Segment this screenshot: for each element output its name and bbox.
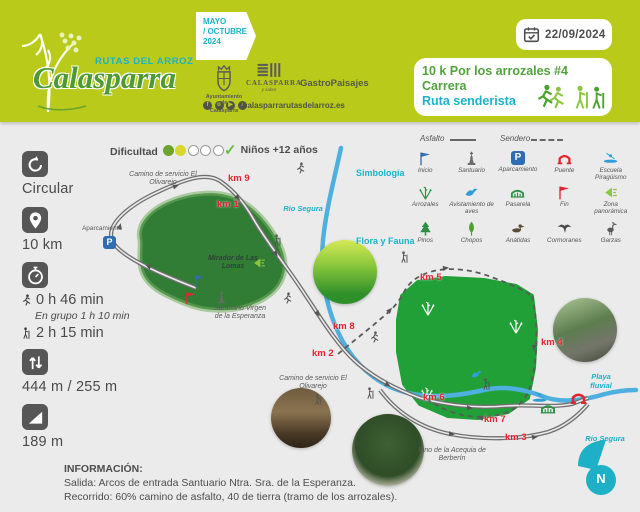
route-type: Circular — [22, 181, 74, 197]
sanctuary-icon — [218, 292, 225, 303]
simbologia-heading: Simbología — [356, 168, 405, 178]
finish-flag-icon — [557, 185, 572, 200]
start-flag-icon — [418, 151, 433, 166]
legend-label: Santuario — [458, 167, 485, 174]
parking-icon: P — [511, 151, 525, 165]
route-poster: RUTAS DEL ARROZ Calasparra MAYO / OCTUBR… — [0, 0, 640, 512]
map-icons-layer — [0, 0, 640, 512]
run-time-row: 0 h 46 min — [20, 292, 104, 308]
panoramic-icon — [603, 185, 618, 200]
difficulty-dot — [213, 145, 224, 156]
km-marker-5: km 5 — [420, 272, 442, 283]
legend-label: Cormoranes — [547, 237, 582, 244]
walk-time-row: 2 h 15 min — [20, 325, 104, 341]
runner-icon — [371, 331, 378, 342]
legend-row-3: Pinos Chopos Anátidas Cormoranes Garzas — [402, 221, 634, 244]
difficulty-dot — [163, 145, 174, 156]
info-recorrido: Recorrido: 60% camino de asfalto, 40 de … — [64, 491, 397, 505]
legend-label: Escuela Piragüismo — [588, 167, 634, 181]
pine-icon — [418, 221, 433, 236]
legend-label: Inicio — [418, 167, 433, 174]
circular-route-icon — [26, 155, 45, 174]
runner-icon — [20, 294, 33, 307]
north-arrow-icon — [578, 440, 616, 495]
hiker-icon — [402, 251, 407, 262]
legend-label: Pinos — [417, 237, 433, 244]
camino-servicio-label-1: Camino de servicio El Olivarejo — [121, 171, 206, 188]
walkway-icon — [510, 185, 525, 200]
legend-label: Puente — [554, 167, 574, 174]
rio-segura-label-1: Río Segura — [273, 204, 333, 213]
check-icon: ✓ — [224, 141, 237, 159]
mirador-label: Mirador de Las Lomas — [207, 255, 259, 272]
north-letter: N — [589, 471, 613, 486]
legend-row-2: Arrozales Avistamiento de aves Pasarela … — [402, 185, 634, 215]
route-type-iconbox — [22, 151, 48, 177]
birdwatching-icon — [464, 185, 479, 200]
km-marker-4: km 4 — [541, 337, 563, 348]
hiker-icon — [20, 327, 33, 340]
walk-time: 2 h 15 min — [36, 325, 104, 341]
km-marker-9: km 9 — [228, 173, 250, 184]
kayak-school-icon — [533, 392, 547, 402]
info-title: INFORMACIÓN: — [64, 463, 397, 477]
slope-triangle-icon — [26, 408, 45, 427]
elevation-iconbox — [22, 349, 48, 375]
km-marker-8: km 8 — [333, 321, 355, 332]
santuario-label: Santuario Virgen de la Esperanza — [211, 305, 269, 322]
km-marker-6: km 6 — [423, 392, 445, 403]
cormorant-icon — [557, 221, 572, 236]
hiker-icon — [368, 387, 373, 398]
legend-label: Fin — [560, 201, 569, 208]
kids-label: Niños +12 años — [241, 144, 318, 156]
slope-iconbox — [22, 404, 48, 430]
legend-label: Arrozales — [412, 201, 439, 208]
parking-icon: P — [103, 236, 116, 249]
info-block: INFORMACIÓN: Salida: Arcos de entrada Sa… — [64, 463, 397, 505]
hiker-icon — [484, 378, 489, 389]
sanctuary-icon — [464, 151, 479, 166]
birdwatching-icon — [471, 371, 481, 377]
pino-acequia-label: Pino de la Acequia de Berberín — [405, 447, 500, 464]
difficulty-dots — [163, 143, 226, 161]
runner-icon — [284, 292, 291, 303]
hiker-icon — [315, 394, 320, 404]
legend-label: Avistamiento de aves — [448, 201, 494, 215]
duck-icon — [510, 221, 525, 236]
poplar-icon — [464, 221, 479, 236]
legend-label: Chopos — [461, 237, 483, 244]
elevation-gain: 444 m / 255 m — [22, 379, 117, 395]
runner-icon — [297, 162, 304, 173]
heron-icon — [603, 221, 618, 236]
rice-field-icon — [418, 185, 433, 200]
km-marker-2: km 2 — [312, 348, 334, 359]
km-marker-7: km 7 — [484, 414, 506, 425]
km-marker-1: km 1 — [217, 199, 239, 210]
aparcamiento-label: Aparcamiento — [67, 225, 137, 233]
rice-field-icon — [510, 320, 523, 333]
max-slope: 189 m — [22, 434, 63, 450]
difficulty-dot — [175, 145, 186, 156]
bridge-icon — [557, 151, 572, 166]
camino-servicio-label-2: Camino de servicio El Olivarejo — [273, 375, 353, 392]
up-down-arrows-icon — [26, 353, 45, 372]
difficulty-dot — [188, 145, 199, 156]
info-salida: Salida: Arcos de entrada Santuario Ntra.… — [64, 477, 397, 491]
distance-pin-icon — [26, 211, 45, 230]
group-time: En grupo 1 h 10 min — [35, 310, 130, 322]
playa-fluvial-label: Playa fluvial — [581, 372, 621, 390]
legend-label: Anátidas — [506, 237, 531, 244]
legend-row-1: Inicio Santuario PAparcamiento Puente Es… — [402, 151, 634, 181]
run-time: 0 h 46 min — [36, 292, 104, 308]
kayak-school-icon — [603, 151, 618, 166]
bridge-icon — [571, 395, 586, 403]
legend-label: Garzas — [601, 237, 621, 244]
asfalto-label: Asfalto — [420, 134, 444, 143]
walkway-icon — [541, 406, 555, 413]
sendero-line-sample — [531, 139, 563, 141]
difficulty-label: Dificultad — [110, 146, 158, 158]
stopwatch-icon — [26, 266, 45, 285]
finish-flag-icon — [187, 292, 195, 304]
km-marker-3: km 3 — [505, 432, 527, 443]
time-iconbox — [22, 262, 48, 288]
start-flag-icon — [196, 275, 204, 287]
difficulty-dot — [200, 145, 211, 156]
rice-field-icon — [422, 302, 435, 315]
difficulty-row: Dificultad — [110, 143, 225, 161]
legend-label: Aparcamiento — [499, 166, 538, 173]
legend-label: Pasarela — [506, 201, 531, 208]
distance: 10 km — [22, 237, 63, 253]
sendero-label: Sendero — [500, 134, 530, 143]
hiker-icon — [275, 234, 280, 245]
distance-iconbox — [22, 207, 48, 233]
kids-row: ✓ Niños +12 años — [224, 141, 318, 159]
legend-label: Zona panorámica — [588, 201, 634, 215]
rio-segura-label-2: Río Segura — [574, 434, 636, 443]
asfalto-line-sample — [450, 139, 476, 141]
